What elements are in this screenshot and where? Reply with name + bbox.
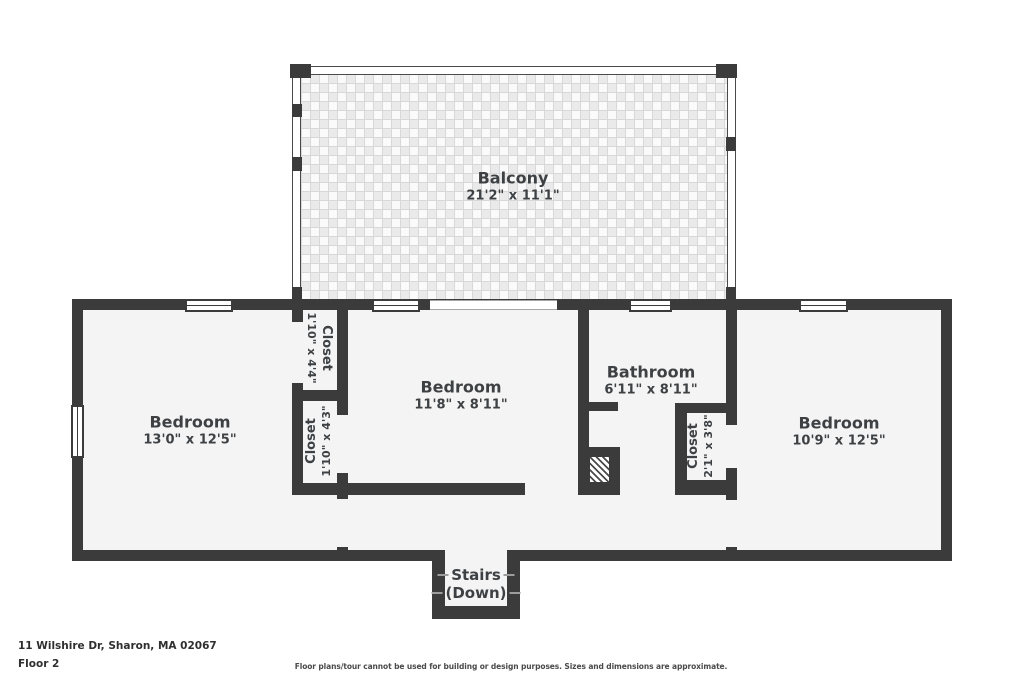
room-name: Bathroom: [604, 363, 697, 383]
room-name: Bedroom: [143, 413, 236, 433]
room-name: Closet: [305, 418, 320, 464]
disclaimer-text: Floor plans/tour cannot be used for buil…: [295, 662, 728, 671]
stairs-direction-text: (Down): [445, 584, 506, 602]
room-name: Bedroom: [792, 414, 885, 434]
railing-post: [292, 104, 302, 117]
wall-segment: [292, 299, 303, 322]
wall-segment: [583, 402, 618, 411]
balcony-railing-top: [292, 66, 736, 75]
room-name: Closet: [318, 325, 333, 371]
railing-post: [292, 157, 302, 171]
wall-segment: [578, 299, 589, 495]
balcony-railing-right: [727, 66, 736, 302]
floor-number: Floor 2: [18, 658, 59, 670]
stair-tread-line: [437, 574, 448, 576]
room-dimensions: 1'10" x 4'3": [320, 405, 333, 476]
stairs-doorway: [445, 550, 507, 562]
wall-segment: [726, 299, 737, 425]
stairs-text: Stairs: [451, 566, 501, 584]
window: [629, 299, 672, 312]
wall-segment: [610, 447, 620, 495]
bedroom-left-label: Bedroom 13'0" x 12'5": [143, 413, 236, 450]
stair-tread-line: [504, 574, 515, 576]
balcony-sliding-door: [430, 300, 557, 310]
closet-top-label: Closet 1'10" x 4'4": [305, 312, 333, 383]
bedroom-right-label: Bedroom 10'9" x 12'5": [792, 414, 885, 451]
balcony-label: Balcony 21'2" x 11'1": [466, 169, 559, 206]
stair-tread-line: [510, 592, 521, 594]
room-dimensions: 6'11" x 8'11": [604, 383, 697, 400]
window: [185, 299, 233, 312]
stairs-label: Stairs (Down): [431, 566, 520, 602]
window: [799, 299, 848, 312]
railing-post: [726, 137, 736, 151]
balcony-railing-left: [292, 66, 301, 302]
bathroom-label: Bathroom 6'11" x 8'11": [604, 363, 697, 400]
wall-segment: [726, 547, 737, 561]
room-dimensions: 21'2" x 11'1": [466, 189, 559, 206]
room-dimensions: 13'0" x 12'5": [143, 433, 236, 450]
stair-tread-line: [431, 592, 442, 594]
wall-segment: [292, 483, 525, 495]
closet-bottom-label: Closet 1'10" x 4'3": [305, 405, 333, 476]
room-dimensions: 10'9" x 12'5": [792, 434, 885, 451]
bedroom-middle-label: Bedroom 11'8" x 8'11": [414, 378, 507, 415]
wall-segment: [337, 547, 348, 561]
room-name: Closet: [687, 423, 702, 469]
window: [71, 405, 84, 458]
room-name: Balcony: [466, 169, 559, 189]
railing-post: [290, 64, 311, 78]
wall-segment: [726, 468, 737, 500]
closet-bathroom-label: Closet 2'1" x 3'8": [687, 414, 715, 478]
room-dimensions: 2'1" x 3'8": [702, 414, 715, 478]
room-dimensions: 11'8" x 8'11": [414, 398, 507, 415]
duct-shaft-hatch: [589, 456, 610, 483]
room-name: Bedroom: [414, 378, 507, 398]
property-address: 11 Wilshire Dr, Sharon, MA 02067: [18, 640, 217, 652]
railing-post: [716, 64, 737, 78]
floor-plan-page: { "labels": { "balcony": { "name": "Balc…: [0, 0, 1024, 683]
room-dimensions: 1'10" x 4'4": [305, 312, 318, 383]
wall-segment: [337, 299, 348, 415]
window: [372, 299, 420, 312]
